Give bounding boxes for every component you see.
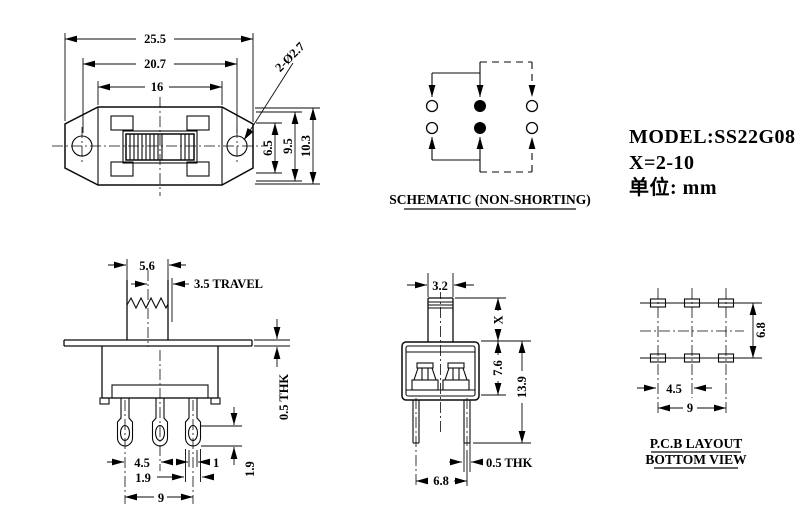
terminal-pins-front — [118, 398, 201, 446]
dim-top-hole-callout: 2-Ø2.7 — [272, 39, 307, 74]
schematic: SCHEMATIC (NON-SHORTING) — [389, 62, 590, 209]
dim-front-pin-width: 1 — [213, 456, 219, 470]
knob-break-line — [127, 298, 168, 308]
top-view-centerlines — [52, 97, 268, 196]
dim-pcb-row-spacing: 6.8 — [754, 322, 768, 338]
dim-top-inner-height: 6.5 — [261, 140, 275, 156]
x-range: X=2-10 — [629, 152, 695, 174]
dim-side-knob-depth: 3.2 — [432, 279, 448, 293]
dim-front-flange-thickness: 0.5 THK — [277, 374, 291, 421]
model-info: MODEL:SS22G08 X=2-10 单位: mm — [629, 126, 796, 199]
front-view-extension-lines — [127, 259, 290, 482]
unit-label: 单位: mm — [629, 175, 717, 199]
technical-drawing-page: 25.5 20.7 16 2-Ø2.7 6.5 9.5 10.3 — [0, 0, 800, 520]
terminal-pins-side — [413, 400, 470, 443]
dim-side-pin-spacing: 6.8 — [433, 474, 449, 488]
pcb-bottom-view-title: BOTTOM VIEW — [645, 452, 747, 467]
slide-switch-drawing: 25.5 20.7 16 2-Ø2.7 6.5 9.5 10.3 — [0, 0, 800, 520]
dim-side-actuator-height: X — [492, 315, 506, 324]
dim-front-pin-tip-width: 1.9 — [135, 471, 151, 485]
schematic-wiring-dashed — [480, 62, 532, 172]
pcb-dimension-lines — [637, 303, 753, 408]
side-view: 3.2 X 7.6 13.9 0.5 THK 6.8 — [402, 273, 533, 488]
common-contact-1 — [474, 100, 486, 112]
schematic-title: SCHEMATIC (NON-SHORTING) — [389, 192, 590, 207]
model-number: MODEL:SS22G08 — [629, 126, 796, 148]
schematic-contacts — [427, 100, 538, 134]
side-view-centerlines — [416, 288, 467, 486]
dim-side-total-height: 13.9 — [515, 376, 529, 398]
dim-front-pin-hole-offset: 1.9 — [243, 461, 257, 477]
knob-ribs — [130, 134, 189, 160]
dim-pcb-pad-pitch: 4.5 — [666, 382, 682, 396]
switch-front-outline — [64, 280, 252, 446]
dim-top-total-width: 25.5 — [144, 32, 166, 46]
dim-side-body-height: 7.6 — [491, 360, 505, 376]
dim-top-total-height: 10.3 — [299, 135, 313, 157]
dim-front-travel: 3.5 TRAVEL — [194, 277, 263, 291]
dim-side-pin-thickness: 0.5 THK — [486, 456, 533, 470]
top-view: 25.5 20.7 16 2-Ø2.7 6.5 9.5 10.3 — [52, 32, 320, 196]
dim-front-pin-span: 9 — [158, 491, 164, 505]
dim-top-mid-height: 9.5 — [281, 138, 295, 154]
dim-pcb-pad-span: 9 — [687, 401, 693, 415]
dim-top-body-width: 16 — [151, 80, 164, 94]
front-view: 5.6 3.5 TRAVEL 0.5 THK 1.9 4.5 1 1.9 9 — [64, 259, 291, 505]
pcb-layout-title: P.C.B LAYOUT — [650, 436, 742, 451]
common-contact-2 — [474, 122, 486, 134]
pcb-layout: 6.8 4.5 9 P.C.B LAYOUT BOTTOM VIEW — [637, 288, 768, 468]
dim-top-hole-pitch: 20.7 — [144, 57, 166, 71]
dim-front-pin-pitch: 4.5 — [134, 456, 150, 470]
schematic-wiring-solid — [432, 62, 480, 172]
dim-front-knob-width: 5.6 — [139, 259, 155, 273]
